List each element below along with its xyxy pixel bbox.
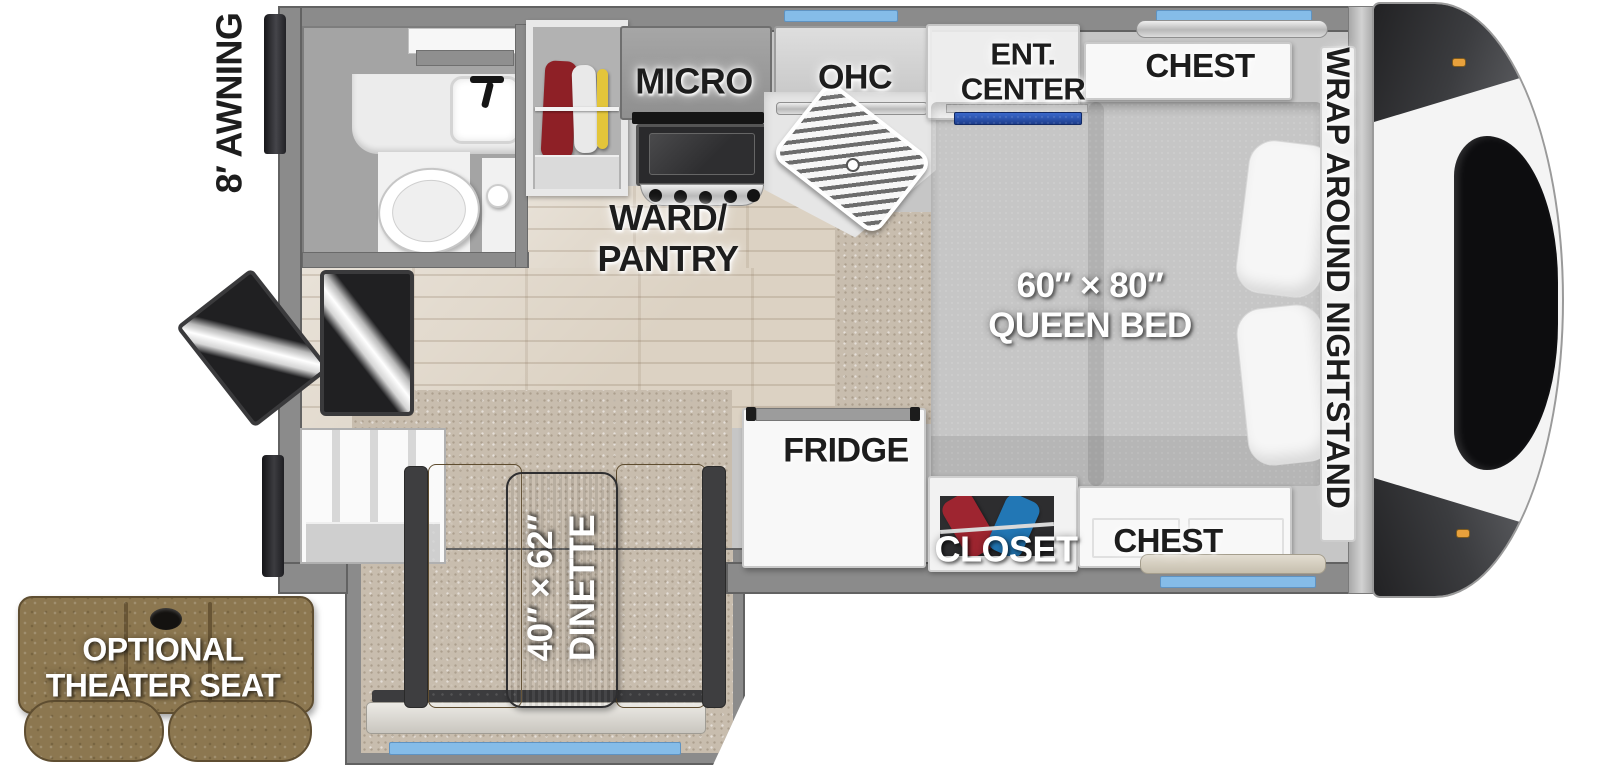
chest-bottom-label: CHEST [1113, 522, 1222, 560]
micro-label: MICRO [635, 60, 753, 101]
ohc-label: OHC [818, 59, 892, 98]
stove-vent [632, 112, 764, 124]
wardrobe-cabinet [526, 20, 628, 196]
nightstand-top-rail [1136, 20, 1328, 38]
bottom-window [1160, 576, 1316, 588]
stove-oven-glass [649, 133, 755, 175]
awning-label: 8′ AWNING [208, 13, 249, 194]
fridge-hinge-right [910, 407, 920, 421]
stove-burner-5 [747, 189, 760, 202]
dinette-bench-right [616, 464, 706, 708]
wrap-nightstand-label: WRAP AROUND NIGHTSTAND [1320, 47, 1356, 509]
floorplan-canvas: 8′ AWNING MICRO OHC ENT. CENTER CHEST WR… [0, 0, 1600, 781]
ward-pantry-label: WARD/ PANTRY [598, 197, 739, 279]
top-window-1 [784, 10, 898, 22]
bathroom-wall-divider [302, 252, 529, 268]
queen-bed-label: 60″ × 80″ QUEEN BED [988, 266, 1192, 346]
theater-seat-label: OPTIONAL THEATER SEAT [46, 632, 281, 705]
theater-seat-cupholder [150, 608, 182, 630]
awning-rail [264, 14, 286, 154]
exterior-utility-bar [262, 455, 284, 577]
cab-clearance-light-top [1452, 58, 1466, 67]
stove-oven [636, 124, 768, 186]
wardrobe-hanger-rod [535, 107, 619, 111]
cab-roof-band [1374, 4, 1562, 122]
dinette-window [389, 742, 681, 755]
dinette-label: 40″ × 62″ DINETTE [520, 515, 604, 662]
dinette-bench-right-back [702, 466, 726, 708]
wardrobe-lower-shelf [535, 155, 619, 189]
bathroom-floor-right-stall [482, 158, 516, 258]
bathroom-medicine-cabinet [416, 50, 514, 66]
cab-windshield [1454, 136, 1558, 470]
dinette-bench-left-back [404, 466, 428, 708]
theater-seat-cushion-right [168, 700, 312, 762]
fridge-label: FRIDGE [783, 432, 908, 471]
truck-cab-nose [1372, 2, 1564, 598]
ent-center-label: ENT. CENTER [961, 37, 1085, 108]
chest-top-label: CHEST [1145, 47, 1254, 85]
closet-label: CLOSET [934, 528, 1077, 569]
cab-clearance-light-bottom [1456, 529, 1470, 538]
fridge-top-vent [756, 408, 912, 421]
fridge-hinge-left [746, 407, 756, 421]
bedroom-carpet-strip [835, 212, 931, 424]
kitchen-sink-drain [843, 155, 863, 175]
entry-doorway [320, 270, 414, 416]
theater-seat-cushion-left [24, 700, 164, 762]
toilet-paper-holder [486, 184, 510, 208]
